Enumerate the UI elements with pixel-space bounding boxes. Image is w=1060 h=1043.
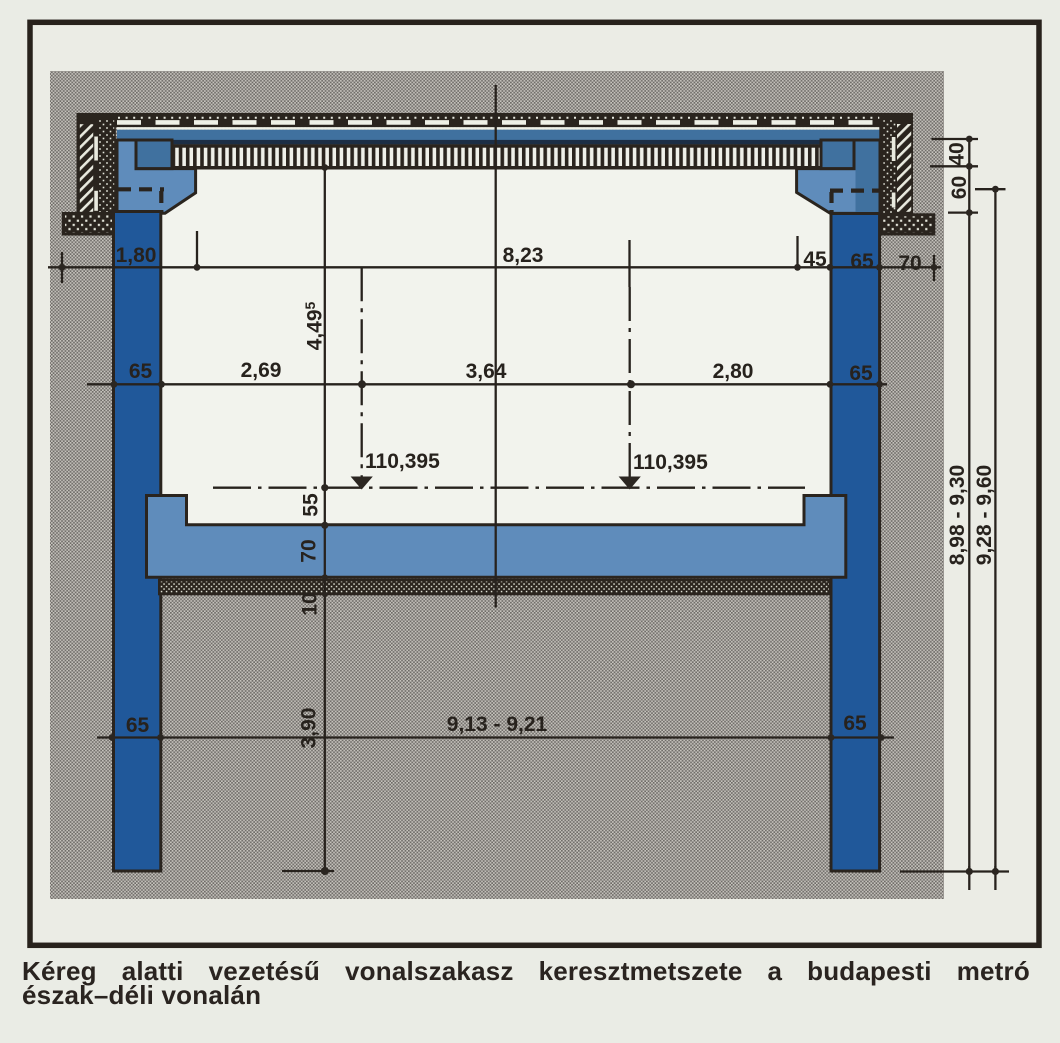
svg-text:65: 65 — [850, 250, 874, 273]
svg-text:2,69: 2,69 — [241, 359, 282, 382]
svg-text:65: 65 — [849, 362, 873, 385]
svg-text:9,28 - 9,60: 9,28 - 9,60 — [973, 465, 996, 565]
svg-text:70: 70 — [298, 539, 321, 562]
svg-text:9,13 - 9,21: 9,13 - 9,21 — [447, 713, 548, 736]
svg-text:3,90: 3,90 — [298, 708, 321, 749]
svg-text:65: 65 — [126, 714, 150, 737]
svg-text:1,80: 1,80 — [116, 244, 157, 267]
svg-text:40: 40 — [946, 142, 969, 165]
svg-text:8,23: 8,23 — [503, 244, 544, 267]
svg-text:110,395: 110,395 — [365, 450, 440, 473]
svg-text:65: 65 — [843, 712, 867, 735]
svg-text:2,80: 2,80 — [713, 360, 754, 383]
svg-text:110,395: 110,395 — [633, 451, 708, 474]
svg-text:65: 65 — [129, 360, 153, 383]
svg-text:8,98 - 9,30: 8,98 - 9,30 — [946, 465, 969, 565]
svg-text:10: 10 — [299, 592, 322, 615]
svg-text:60: 60 — [948, 176, 971, 199]
svg-text:70: 70 — [898, 252, 921, 275]
svg-text:55: 55 — [300, 493, 323, 517]
svg-text:45: 45 — [803, 248, 827, 271]
svg-text:3,64: 3,64 — [466, 360, 507, 383]
